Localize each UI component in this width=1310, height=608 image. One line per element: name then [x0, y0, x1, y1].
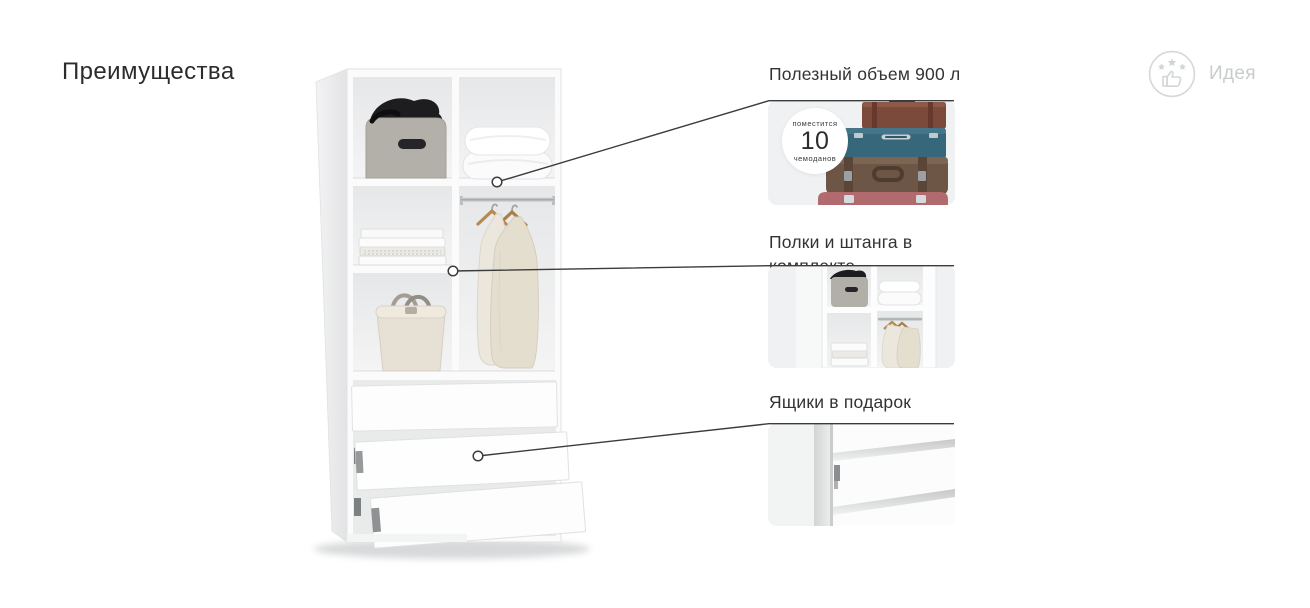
badge-number: 10 — [801, 128, 830, 154]
badge-text-bottom: чемоданов — [794, 154, 837, 163]
feature-volume-label: Полезный объем 900 л — [769, 62, 979, 86]
suitcase-leather-brown — [826, 157, 948, 195]
suitcase-pink — [818, 192, 948, 205]
mini-linens — [831, 343, 868, 366]
feature-drawers-card — [768, 423, 955, 526]
feature-drawers-label: Ящики в подарок — [769, 390, 979, 414]
feature-shelves-card — [768, 265, 955, 368]
advantages-section: Преимущества Идея — [0, 0, 1310, 608]
plinth — [347, 534, 467, 542]
capacity-badge: поместится 10 чемоданов — [782, 108, 848, 174]
suitcase-teal — [844, 128, 946, 161]
handbag — [376, 295, 446, 371]
hanging-garments — [477, 214, 538, 368]
side-panel — [316, 69, 347, 542]
wardrobe-product-image — [0, 0, 1310, 608]
drawers-closeup-photo — [768, 423, 955, 526]
feature-volume-card: поместится 10 чемоданов — [768, 100, 955, 205]
storage-basket — [366, 98, 446, 178]
mini-basket — [830, 270, 868, 307]
wardrobe — [314, 69, 590, 559]
mini-pillows — [878, 281, 921, 305]
wardrobe-shelves-closeup-photo — [768, 265, 955, 368]
pillows — [463, 127, 552, 179]
folded-linens — [359, 229, 446, 265]
drawers — [352, 382, 586, 548]
suitcase-top-brown — [862, 100, 946, 129]
